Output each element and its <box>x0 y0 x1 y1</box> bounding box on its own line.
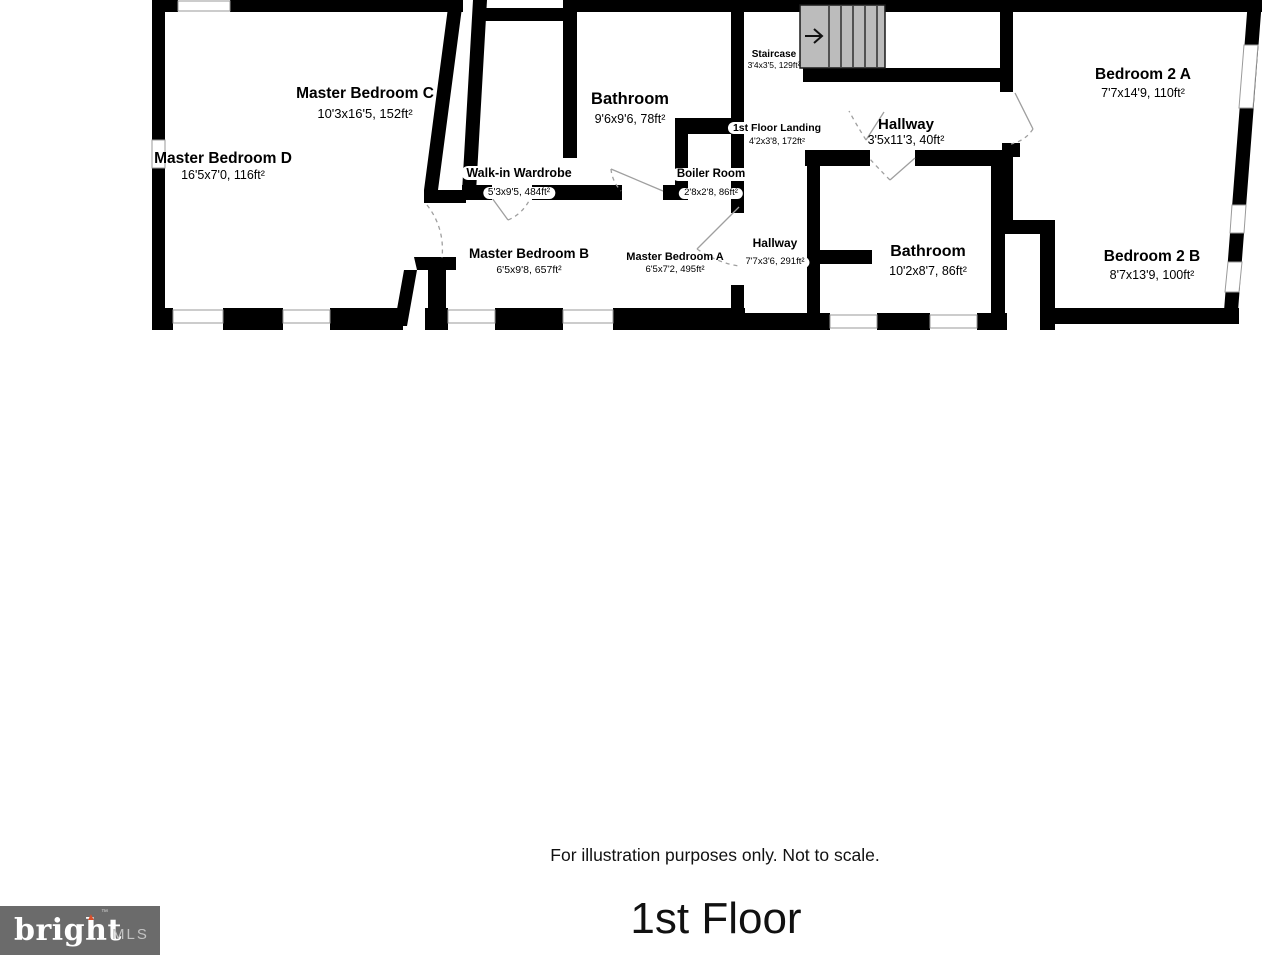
room-dimensions: 7'7x14'9, 110ft² <box>1095 86 1191 100</box>
room-label-hallway-upper: Hallway 3'5x11'3, 40ft² <box>868 116 945 148</box>
room-label-bedroom-2b: Bedroom 2 B 8'7x13'9, 100ft² <box>1104 248 1200 282</box>
window <box>563 310 613 323</box>
room-dimensions: 2'8x2'8, 86ft² <box>679 188 743 199</box>
room-name: Bedroom 2 B <box>1104 248 1200 266</box>
window <box>1230 205 1246 233</box>
room-name: Boiler Room <box>672 168 750 181</box>
window <box>173 310 223 323</box>
room-name: Hallway <box>868 116 945 133</box>
room-dimensions: 7'7x3'6, 291ft² <box>740 257 809 268</box>
room-label-boiler-room: Boiler Room 2'8x2'8, 86ft² <box>672 164 750 201</box>
room-dimensions: 10'2x8'7, 86ft² <box>889 264 967 278</box>
room-name: Master Bedroom D <box>154 150 292 168</box>
room-label-master-bedroom-d: Master Bedroom D 16'5x7'0, 116ft² <box>154 150 292 182</box>
room-label-master-bedroom-c: Master Bedroom C 10'3x16'5, 152ft² <box>296 85 434 122</box>
room-dimensions: 4'2x3'8, 172ft² <box>728 136 826 146</box>
window <box>830 315 877 328</box>
window <box>1225 262 1242 292</box>
floor-plan: Master Bedroom D 16'5x7'0, 116ft² Master… <box>0 0 1279 340</box>
room-name: Staircase <box>748 49 801 61</box>
room-dimensions: 3'5x11'3, 40ft² <box>868 133 945 147</box>
room-dimensions: 6'5x7'2, 495ft² <box>626 265 723 276</box>
window <box>1239 45 1258 108</box>
room-name: Bathroom <box>591 90 669 109</box>
window <box>448 310 495 323</box>
room-label-hallway-lower: Hallway 7'7x3'6, 291ft² <box>740 237 809 269</box>
room-label-master-bedroom-a: Master Bedroom A 6'5x7'2, 495ft² <box>626 251 723 276</box>
room-label-bathroom-right: Bathroom 10'2x8'7, 86ft² <box>889 243 967 279</box>
window <box>283 310 330 323</box>
window <box>178 1 230 11</box>
room-dimensions: 9'6x9'6, 78ft² <box>591 112 669 126</box>
room-name: Master Bedroom B <box>469 246 589 262</box>
logo-trademark: ™ <box>101 909 108 916</box>
logo-triangle-icon: ▲ <box>86 912 96 923</box>
room-dimensions: 3'4x3'5, 129ft² <box>748 61 801 71</box>
room-name: Bathroom <box>889 243 967 261</box>
staircase-graphic <box>800 5 885 68</box>
room-dimensions: 16'5x7'0, 116ft² <box>154 168 292 182</box>
room-label-walk-in-wardrobe: Walk-in Wardrobe 5'3x9'5, 484ft² <box>461 164 576 201</box>
room-dimensions: 10'3x16'5, 152ft² <box>296 107 434 122</box>
brightmls-logo: bright ▲ ™ MLS <box>0 906 160 955</box>
room-name: Walk-in Wardrobe <box>461 166 576 180</box>
room-label-master-bedroom-b: Master Bedroom B 6'5x9'8, 657ft² <box>469 246 589 276</box>
room-name: Bedroom 2 A <box>1095 66 1191 84</box>
room-label-bedroom-2a: Bedroom 2 A 7'7x14'9, 110ft² <box>1095 66 1191 100</box>
room-name: 1st Floor Landing <box>728 122 826 134</box>
logo-suffix-text: MLS <box>112 926 149 943</box>
floor-plan-page: Master Bedroom D 16'5x7'0, 116ft² Master… <box>0 0 1279 955</box>
room-name: Hallway <box>740 237 809 251</box>
room-label-first-floor-landing: 1st Floor Landing 4'2x3'8, 172ft² <box>728 118 826 147</box>
room-name: Master Bedroom C <box>296 85 434 103</box>
room-label-staircase: Staircase 3'4x3'5, 129ft² <box>748 49 801 70</box>
room-name: Master Bedroom A <box>626 251 723 264</box>
room-label-bathroom-upper: Bathroom 9'6x9'6, 78ft² <box>591 90 669 126</box>
floor-title: 1st Floor <box>630 894 801 944</box>
room-dimensions: 6'5x9'8, 657ft² <box>469 264 589 276</box>
window <box>930 315 977 328</box>
disclaimer-text: For illustration purposes only. Not to s… <box>550 845 879 866</box>
room-dimensions: 8'7x13'9, 100ft² <box>1104 268 1200 282</box>
logo-brand-text: bright <box>14 913 122 948</box>
room-dimensions: 5'3x9'5, 484ft² <box>483 187 555 199</box>
